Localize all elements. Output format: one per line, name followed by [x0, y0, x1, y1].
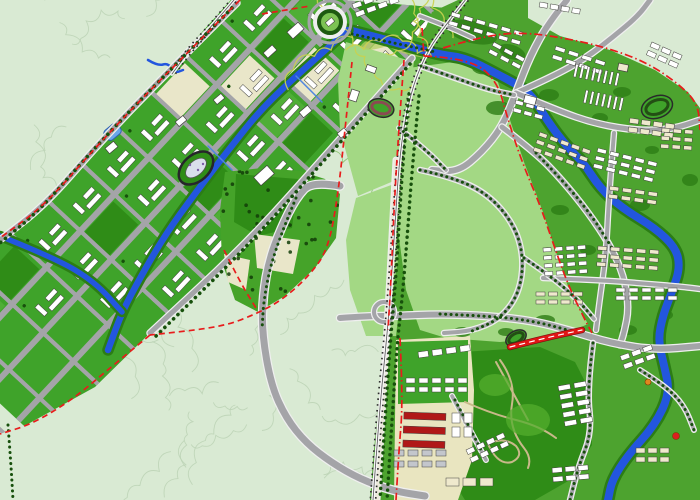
- building: [446, 478, 459, 486]
- building: [579, 474, 589, 480]
- building: [419, 387, 428, 392]
- tree-dot: [241, 171, 245, 175]
- building: [648, 266, 657, 271]
- building: [624, 248, 633, 253]
- tree-grove: [645, 146, 659, 154]
- building: [616, 296, 625, 300]
- tree-dot: [225, 192, 229, 196]
- building: [567, 254, 575, 259]
- building: [661, 136, 669, 141]
- building: [552, 467, 562, 473]
- tree-dot: [256, 214, 260, 218]
- building: [572, 8, 581, 14]
- vegetation-patch: [506, 404, 550, 436]
- building: [561, 6, 570, 12]
- tree-dot: [251, 288, 255, 292]
- building: [623, 256, 632, 261]
- building: [550, 4, 559, 10]
- building: [579, 261, 587, 266]
- building: [568, 270, 576, 275]
- building: [636, 448, 645, 453]
- building: [597, 262, 606, 267]
- building: [432, 387, 441, 392]
- tree-dot: [297, 216, 301, 220]
- building: [685, 130, 693, 135]
- building: [616, 288, 625, 292]
- map-canvas: [0, 0, 700, 500]
- tree-dot: [288, 250, 292, 254]
- building: [536, 292, 545, 296]
- building: [662, 128, 670, 133]
- tree-dot: [304, 242, 308, 246]
- building: [436, 450, 446, 456]
- tree-dot: [329, 220, 333, 224]
- building: [408, 450, 418, 456]
- building: [544, 255, 552, 260]
- building: [629, 288, 638, 292]
- building: [648, 457, 657, 462]
- tree-dot: [222, 209, 226, 213]
- arena-detail-dot: [202, 163, 204, 165]
- building: [673, 129, 681, 134]
- building: [641, 120, 651, 126]
- building: [628, 127, 638, 133]
- tree-grove: [682, 174, 698, 186]
- tree-dot: [236, 257, 240, 261]
- building: [566, 246, 574, 251]
- building: [642, 288, 651, 292]
- tree-dot: [288, 223, 292, 227]
- building: [544, 263, 552, 268]
- building: [661, 144, 669, 149]
- tree-dot: [313, 238, 317, 242]
- arena-detail-dot: [189, 164, 191, 166]
- building: [653, 121, 663, 127]
- building: [446, 347, 457, 354]
- tree-dot: [231, 182, 235, 186]
- building: [458, 387, 467, 392]
- building: [610, 255, 619, 260]
- building: [549, 292, 558, 296]
- tree-dot: [287, 241, 291, 245]
- building: [684, 138, 692, 143]
- building: [668, 296, 677, 300]
- building: [655, 288, 664, 292]
- building: [452, 413, 460, 423]
- tree-dot: [284, 289, 288, 293]
- building: [655, 296, 664, 300]
- building: [668, 288, 677, 292]
- building: [458, 378, 467, 383]
- tree-dot: [244, 203, 248, 207]
- building: [408, 461, 418, 467]
- building: [597, 254, 606, 259]
- tree-grove: [551, 205, 569, 215]
- building: [561, 292, 570, 296]
- building: [684, 146, 692, 151]
- master-plan-map: [0, 0, 700, 500]
- building: [452, 427, 460, 437]
- building: [418, 351, 429, 358]
- building: [578, 465, 588, 471]
- building: [422, 461, 432, 467]
- building: [445, 387, 454, 392]
- building: [445, 378, 454, 383]
- south-district-green: [398, 340, 468, 404]
- building: [549, 300, 558, 304]
- building: [460, 345, 471, 352]
- tree-dot: [309, 199, 313, 203]
- building: [660, 457, 669, 462]
- building: [652, 130, 662, 136]
- tree-dot: [307, 223, 311, 227]
- building: [419, 378, 428, 383]
- building: [403, 440, 445, 448]
- building: [553, 476, 563, 482]
- building: [660, 448, 669, 453]
- building: [464, 427, 472, 437]
- building: [404, 412, 446, 420]
- building: [611, 247, 620, 252]
- building: [629, 296, 638, 300]
- tree-grove: [539, 89, 559, 101]
- building: [567, 262, 575, 267]
- building: [566, 475, 576, 481]
- building: [650, 250, 659, 255]
- building-cluster: [446, 478, 493, 486]
- tree-dot: [310, 238, 314, 242]
- building: [536, 300, 545, 304]
- building-cluster: [403, 412, 446, 448]
- building: [561, 300, 570, 304]
- building: [578, 253, 586, 258]
- marker-red: [673, 433, 680, 440]
- building: [565, 466, 575, 472]
- building: [574, 292, 583, 296]
- building-cluster: [661, 128, 693, 150]
- building: [403, 426, 445, 434]
- building: [672, 145, 680, 150]
- tree-dot: [224, 187, 228, 191]
- building: [648, 448, 657, 453]
- building: [640, 129, 650, 135]
- building: [554, 247, 562, 252]
- building: [636, 457, 645, 462]
- building: [610, 263, 619, 268]
- building: [636, 257, 645, 262]
- tree-dot: [247, 210, 251, 214]
- building: [642, 296, 651, 300]
- building: [422, 450, 432, 456]
- tree-dot: [245, 170, 249, 174]
- building: [636, 265, 645, 270]
- building: [598, 246, 607, 251]
- vegetation-patch: [479, 374, 511, 396]
- building: [579, 269, 587, 274]
- building: [543, 247, 551, 252]
- building: [649, 258, 658, 263]
- building: [539, 2, 548, 8]
- building: [432, 349, 443, 356]
- building: [545, 271, 553, 276]
- building: [436, 461, 446, 467]
- tree-dot: [227, 272, 231, 276]
- building: [464, 413, 472, 423]
- arena-detail-dot: [197, 169, 199, 171]
- tree-dot: [266, 188, 270, 192]
- building: [463, 478, 476, 486]
- building: [406, 378, 415, 383]
- building: [480, 478, 493, 486]
- building: [577, 245, 585, 250]
- tree-dot: [249, 276, 253, 280]
- tree-dot: [279, 287, 283, 291]
- building: [623, 264, 632, 269]
- marker-orange: [645, 379, 651, 385]
- building: [637, 249, 646, 254]
- tree-grove: [613, 87, 631, 97]
- building: [406, 387, 415, 392]
- building: [432, 378, 441, 383]
- building: [629, 118, 639, 124]
- building: [673, 137, 681, 142]
